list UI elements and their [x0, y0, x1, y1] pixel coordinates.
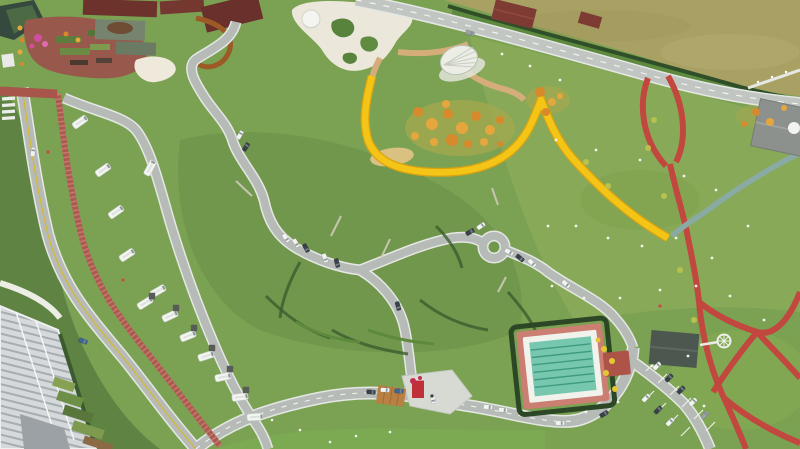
- lamp-post: [501, 53, 504, 56]
- gazebo: [209, 345, 215, 351]
- lamp-post: [355, 435, 358, 438]
- flower-patch: [18, 26, 23, 31]
- lamp-post: [575, 225, 578, 228]
- flower-patch: [426, 118, 438, 130]
- lamp-post: [329, 441, 332, 444]
- lamp-post: [687, 355, 690, 358]
- flower-patch: [464, 140, 472, 148]
- lamp-post: [595, 149, 598, 152]
- lamp-post: [389, 431, 392, 434]
- umbrella: [596, 338, 601, 343]
- gazebo: [243, 387, 249, 393]
- flower-patch: [658, 304, 661, 307]
- flat-green-roof: [116, 41, 156, 55]
- gazebo: [191, 325, 197, 331]
- car: [30, 147, 35, 156]
- pier-post: [785, 71, 787, 73]
- flower-patch: [535, 87, 545, 97]
- hall-roof: [83, 0, 158, 17]
- flower-patch: [496, 116, 504, 124]
- pier-post: [757, 81, 759, 83]
- lamp-post: [639, 159, 642, 162]
- umbrella: [601, 346, 607, 352]
- observation-tower: [718, 335, 731, 348]
- lamp-post: [651, 365, 654, 368]
- flower-patch: [752, 108, 760, 116]
- lamp-post: [641, 245, 644, 248]
- flower-patch: [64, 32, 69, 37]
- lamp-post: [299, 429, 302, 432]
- lamp-post: [585, 411, 588, 414]
- flower-patch: [30, 44, 35, 49]
- lamp-post: [711, 257, 714, 260]
- flower-patch: [691, 317, 697, 323]
- gazebo: [227, 366, 233, 372]
- flower-patch: [651, 117, 657, 123]
- flower-patch: [413, 107, 423, 117]
- lodge-building: [649, 330, 700, 368]
- flower-patch: [20, 38, 25, 43]
- lamp-post: [675, 237, 678, 240]
- flower-patch: [122, 279, 125, 282]
- lamp-post: [559, 79, 562, 82]
- resort-aerial-scene: [0, 0, 800, 449]
- flower-patch: [557, 93, 563, 99]
- lamp-post: [695, 285, 698, 288]
- gazebo: [149, 293, 155, 299]
- umbrella: [609, 358, 615, 364]
- lamp-post: [729, 295, 732, 298]
- flower-patch: [418, 376, 422, 380]
- flower-patch: [46, 150, 49, 153]
- flower-patch: [781, 105, 787, 111]
- flower-patch: [456, 122, 468, 134]
- aerial-photo: [0, 0, 800, 449]
- lamp-post: [551, 285, 554, 288]
- car: [394, 389, 403, 394]
- white-canopy: [788, 122, 800, 134]
- water-light: [660, 34, 800, 70]
- flower-patch: [583, 159, 589, 165]
- flower-patch: [645, 145, 651, 151]
- flower-patch: [430, 394, 433, 397]
- flower-patch: [548, 98, 556, 106]
- car: [483, 404, 492, 409]
- car: [380, 388, 389, 393]
- flower-patch: [443, 109, 453, 119]
- car: [498, 407, 507, 412]
- flower-patch: [766, 118, 774, 126]
- flower-patch: [410, 378, 416, 384]
- flower-patch: [480, 138, 488, 146]
- brick-crossing: [0, 91, 57, 94]
- lamp-post: [619, 297, 622, 300]
- flower-patch: [497, 141, 503, 147]
- flower-patch: [471, 111, 481, 121]
- lamp-post: [547, 225, 550, 228]
- car: [366, 389, 375, 394]
- flower-patch: [442, 100, 450, 108]
- lamp-post: [607, 237, 610, 240]
- flower-patch: [661, 193, 667, 199]
- flower-patch: [411, 132, 419, 140]
- lamp-post: [747, 225, 750, 228]
- lamp-post: [583, 297, 586, 300]
- flower-patch: [20, 62, 24, 66]
- lamp-post: [763, 319, 766, 322]
- umbrella: [603, 370, 609, 376]
- flower-patch: [542, 108, 550, 116]
- pier-post: [771, 76, 773, 78]
- gazebo: [173, 305, 179, 311]
- lamp-post: [715, 189, 718, 192]
- lamp-post: [529, 65, 532, 68]
- flower-patch: [605, 183, 611, 189]
- flower-patch: [485, 125, 495, 135]
- terrace-bed: [60, 48, 90, 55]
- flower-patch: [34, 34, 42, 42]
- rv-camper: [247, 413, 263, 421]
- lamp-post: [271, 419, 274, 422]
- flower-patch: [76, 38, 81, 43]
- flower-patch: [741, 121, 747, 127]
- terrace-planter: [96, 58, 112, 63]
- flower-patch: [18, 50, 23, 55]
- lamp-post: [555, 139, 558, 142]
- flower-patch: [446, 134, 458, 146]
- lamp-post: [659, 289, 662, 292]
- flower-patch: [430, 138, 438, 146]
- car: [556, 421, 565, 425]
- lamp-post: [617, 401, 620, 404]
- lamp-post: [683, 175, 686, 178]
- terrace-bed: [90, 44, 110, 50]
- flower-patch: [677, 267, 683, 273]
- white-roof-small: [1, 53, 15, 68]
- lamp-post: [703, 405, 706, 408]
- umbrella: [612, 386, 618, 392]
- terrace-planter: [70, 60, 88, 65]
- flower-patch: [42, 41, 48, 47]
